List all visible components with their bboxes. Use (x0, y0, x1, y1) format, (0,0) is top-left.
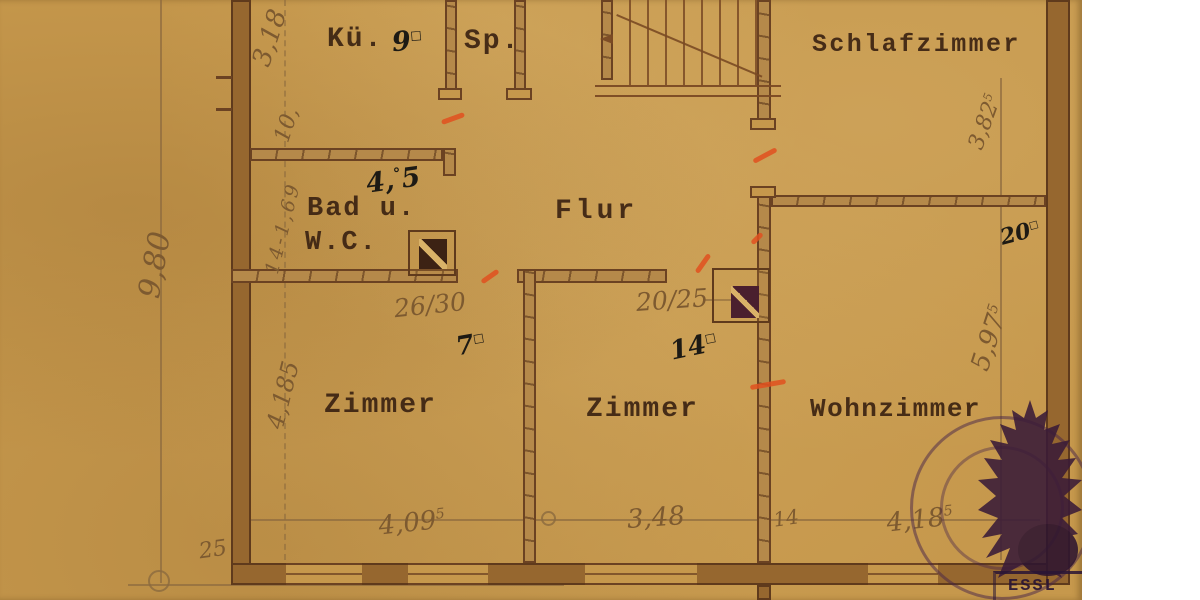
window-bottom-3 (585, 563, 697, 585)
room-label-flur: Flur (555, 196, 638, 227)
dim-4-09-5: 4,095 (377, 505, 447, 542)
stamp-eagle-icon (978, 400, 1082, 578)
dim-3-82-value: 3,82 (964, 98, 1004, 153)
door-jamb-kueche (438, 88, 462, 100)
window-bottom-4 (868, 563, 938, 585)
paper-sheet: Kü. Sp. Schlafzimmer Bad u. W.C. Flur Zi… (0, 0, 1082, 600)
area-wohnzimmer-sup: □ (1028, 219, 1040, 232)
dim-4-185: 4,185 (261, 358, 305, 431)
room-label-bad-line1: Bad u. (307, 194, 416, 224)
window-left-tick-top (216, 76, 232, 79)
red-mark-schlafzimmer-door (752, 147, 777, 164)
area-kueche-sup: □ (410, 28, 423, 43)
dim-5-97-value: 5,97 (965, 310, 1011, 374)
wall-schlaf-wohnzimmer (771, 195, 1046, 207)
red-mark-kueche (441, 112, 465, 125)
wall-mid-vertical (757, 190, 771, 563)
dim-14-169: 14-1,69 (261, 180, 305, 276)
area-kueche: 9□ (391, 25, 424, 59)
outer-wall-left (231, 0, 251, 574)
dim-5-97-5: 5,975 (965, 302, 1014, 375)
red-mark-flur-wall (695, 253, 712, 274)
note-chimney-bad: 26/30 (393, 287, 468, 323)
dim-3-48: 3,48 (626, 501, 686, 535)
window-left-tick-bottom (216, 108, 232, 111)
datum-circle-mid (541, 511, 556, 526)
scan-white-margin (1082, 0, 1200, 600)
floorplan-scan: Kü. Sp. Schlafzimmer Bad u. W.C. Flur Zi… (0, 0, 1200, 600)
wall-bad-top-endcap (443, 148, 456, 176)
area-zimmer-mitte: 14□ (667, 327, 719, 366)
chimney-bad-flue (419, 239, 447, 269)
door-jamb-schlafzimmer-bottom (750, 186, 776, 198)
wall-bad-top (250, 148, 443, 161)
wall-stub-below-bottom (757, 585, 771, 600)
door-jamb-schlafzimmer-top (750, 118, 776, 130)
window-bottom-2 (408, 563, 488, 585)
red-mark-flur-door (480, 269, 499, 285)
stamp-text: ESSL (1008, 577, 1057, 596)
room-label-zimmer-links: Zimmer (324, 390, 437, 421)
dim-4-09-value: 4,09 (377, 506, 438, 542)
area-bad-p2: 5 (399, 161, 422, 194)
room-label-zimmer-mitte: Zimmer (586, 394, 699, 425)
window-bottom-1 (286, 563, 362, 585)
wall-stairs-right-top (757, 0, 771, 126)
staircase-landing-edge (595, 85, 781, 97)
area-bad-p1: 4, (364, 165, 396, 200)
wall-kueche-sp (445, 0, 457, 96)
datum-circle-left (148, 570, 170, 592)
stamp-text-box: ESSL (993, 571, 1082, 600)
wall-zimmer-divider (523, 269, 536, 563)
dim-14: 14 (772, 504, 801, 531)
dim-3-18: 3,18 (247, 6, 293, 70)
staircase-direction-arrow (600, 34, 613, 44)
dim-4-09-sup: 5 (435, 506, 446, 523)
dim-10: 10, (270, 104, 305, 145)
room-label-kueche: Kü. (327, 24, 383, 55)
note-chimney-flur: 20/25 (635, 283, 709, 317)
room-label-speisekammer: Sp. (464, 26, 520, 57)
chimney-flur-flue (731, 286, 759, 318)
dim-25: 25 (197, 536, 228, 565)
room-label-wohnzimmer: Wohnzimmer (810, 394, 981, 424)
room-label-bad-line2: W.C. (305, 228, 378, 258)
wall-flur-bottom (517, 269, 667, 283)
door-jamb-sp (506, 88, 532, 100)
area-zimmer-links: 7□ (454, 328, 488, 363)
dim-9-80: 9,80 (132, 229, 178, 301)
area-wohnzimmer: 20□ (997, 215, 1042, 250)
area-zimmer-mitte-sup: □ (703, 330, 717, 346)
area-zimmer-links-sup: □ (472, 330, 485, 346)
room-label-schlafzimmer: Schlafzimmer (812, 30, 1021, 59)
